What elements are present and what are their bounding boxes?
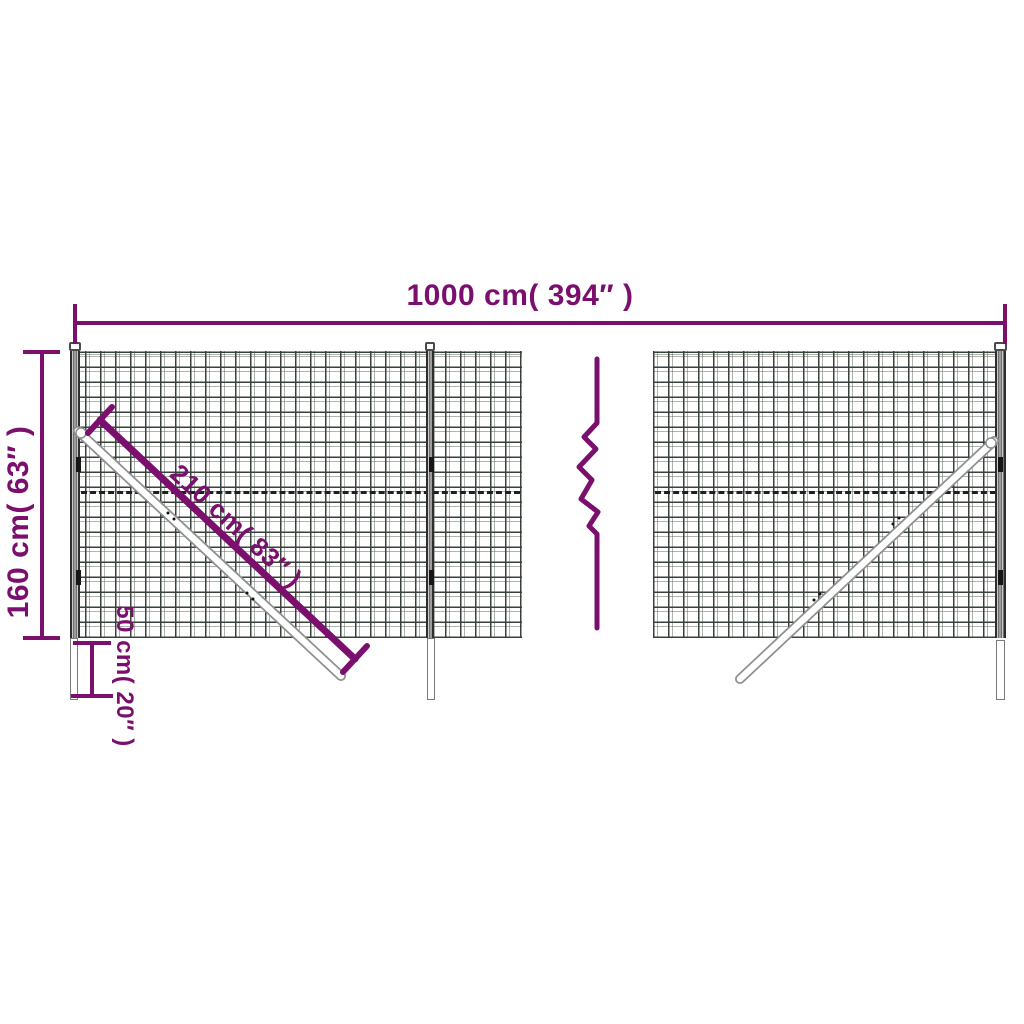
height-dimension-tick-bottom xyxy=(23,636,60,640)
diagonal-brace-right xyxy=(740,438,996,679)
brace-bolt-icon xyxy=(986,438,996,448)
width-dimension-tick-right xyxy=(1003,304,1007,344)
diagram-overlay xyxy=(0,0,1024,1024)
depth-dimension-label: 50 cm( 20″ ) xyxy=(110,605,138,747)
height-dimension-label: 160 cm( 63″ ) xyxy=(2,426,36,619)
break-zigzag-symbol xyxy=(579,359,598,628)
height-dimension-tick-top xyxy=(23,350,60,354)
depth-dimension-tick-bottom xyxy=(71,694,113,698)
depth-dimension-line xyxy=(90,642,94,698)
product-dimension-diagram: 1000 cm( 394″ ) 160 cm( 63″ ) 50 cm( 20″… xyxy=(0,0,1024,1024)
height-dimension-line xyxy=(40,352,44,640)
width-dimension-line xyxy=(75,321,1005,325)
width-dimension-label: 1000 cm( 394″ ) xyxy=(55,279,985,313)
depth-dimension-tick-top xyxy=(73,641,111,645)
brace-bolt-icon xyxy=(76,428,86,438)
